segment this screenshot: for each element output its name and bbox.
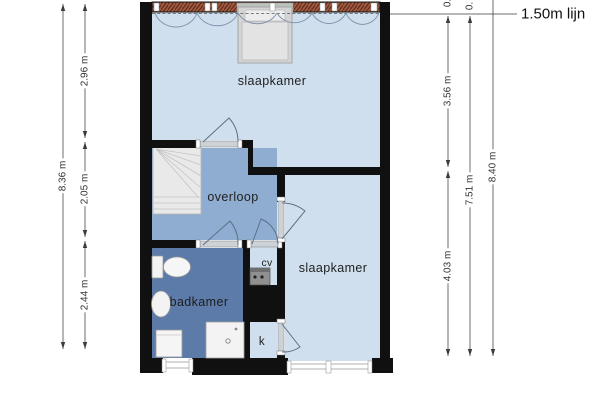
floor-plan: slaapkamer overloop badkamer slaapkamer … xyxy=(0,0,600,400)
height-line-label: 1.50m lijn xyxy=(521,6,585,23)
room-label-cv: cv xyxy=(262,257,273,269)
room-label-bedroom-top: slaapkamer xyxy=(238,74,307,88)
toilet-icon xyxy=(152,256,191,278)
dim-label-right-inner: 7.51 m xyxy=(465,173,476,208)
dim-label-top-fragment-2: 0. xyxy=(465,1,476,11)
room-label-bathroom: badkamer xyxy=(170,295,229,309)
dim-label-left-total: 8.36 m xyxy=(58,159,69,194)
room-label-landing: overloop xyxy=(207,190,258,204)
dim-label-right-lower: 4.03 m xyxy=(443,249,454,284)
shower-icon xyxy=(206,322,244,358)
room-label-bedroom-bottom: slaapkamer xyxy=(299,261,368,275)
dim-label-left-top: 2.96 m xyxy=(80,54,91,89)
dim-label-top-fragment-1: 0. xyxy=(443,0,454,8)
window-bedroom xyxy=(287,361,372,373)
stairs-icon xyxy=(153,146,201,214)
dim-label-right-upper: 3.56 m xyxy=(443,74,454,109)
washing-machine-icon xyxy=(156,330,182,357)
window-bathroom xyxy=(162,359,193,372)
dim-label-left-middle: 2.05 m xyxy=(80,172,91,207)
sink-icon xyxy=(152,291,171,317)
dim-label-right-outer: 8.40 m xyxy=(488,150,499,185)
dim-label-left-bottom: 2.44 m xyxy=(80,278,91,313)
cv-boiler-icon xyxy=(250,268,270,285)
room-label-closet: k xyxy=(259,336,265,348)
bed-icon xyxy=(237,3,293,63)
